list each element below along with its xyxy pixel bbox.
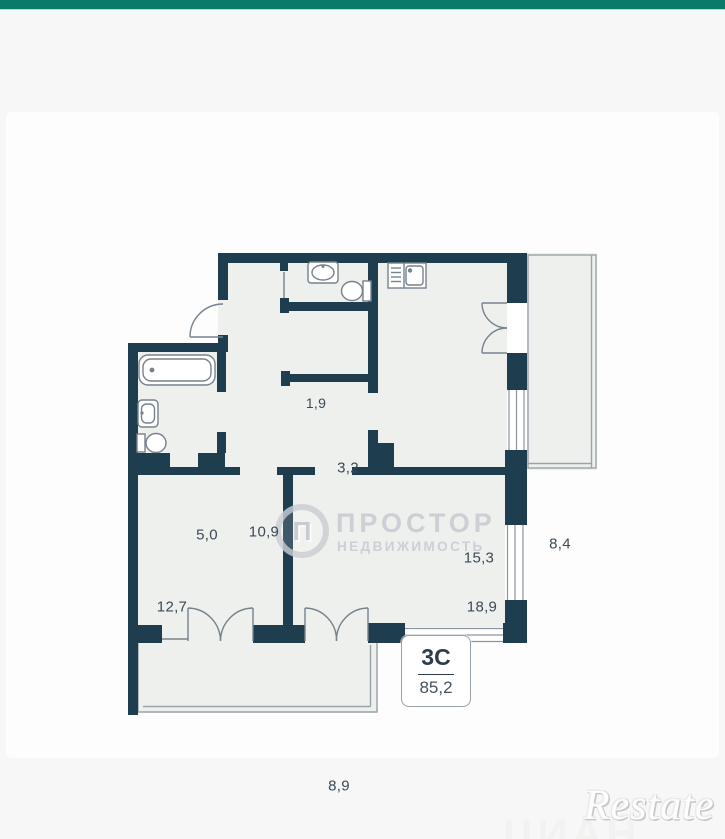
watermark-title: ПРОСТОР xyxy=(336,508,496,539)
unit-type: 3С xyxy=(421,646,450,669)
top-accent-bar xyxy=(0,0,725,10)
room-area-label-corridor: 3,2 xyxy=(337,460,359,477)
watermark-logo-letter: П xyxy=(293,516,312,547)
room-area-label-balcony: 8,4 xyxy=(549,536,571,553)
unit-divider xyxy=(418,674,454,675)
watermark-subtitle: НЕДВИЖИМОСТЬ xyxy=(337,539,485,554)
floorplan-drawing xyxy=(6,112,719,758)
screenshot-root: П ПРОСТОР НЕДВИЖИМОСТЬ 1,9 3,2 5,0 10,9 … xyxy=(0,0,725,839)
room-area-label-wc: 1,9 xyxy=(306,395,326,411)
room-area-label-hall: 10,9 xyxy=(249,524,279,541)
floorplan-image[interactable]: П ПРОСТОР НЕДВИЖИМОСТЬ 1,9 3,2 5,0 10,9 … xyxy=(6,112,719,758)
unit-summary-box: 3С 85,2 xyxy=(401,635,471,707)
brand-watermark: Restate xyxy=(584,782,715,830)
watermark-logo-circle: П xyxy=(275,504,329,558)
room-area-label-kitchen: 15,3 xyxy=(464,550,494,567)
room-area-label-bathroom: 5,0 xyxy=(196,527,218,544)
unit-total-area: 85,2 xyxy=(419,679,452,696)
room-area-label-bedroom: 12,7 xyxy=(157,599,187,616)
room-area-label-loggia: 8,9 xyxy=(328,778,350,795)
room-area-label-living: 18,9 xyxy=(467,599,497,616)
